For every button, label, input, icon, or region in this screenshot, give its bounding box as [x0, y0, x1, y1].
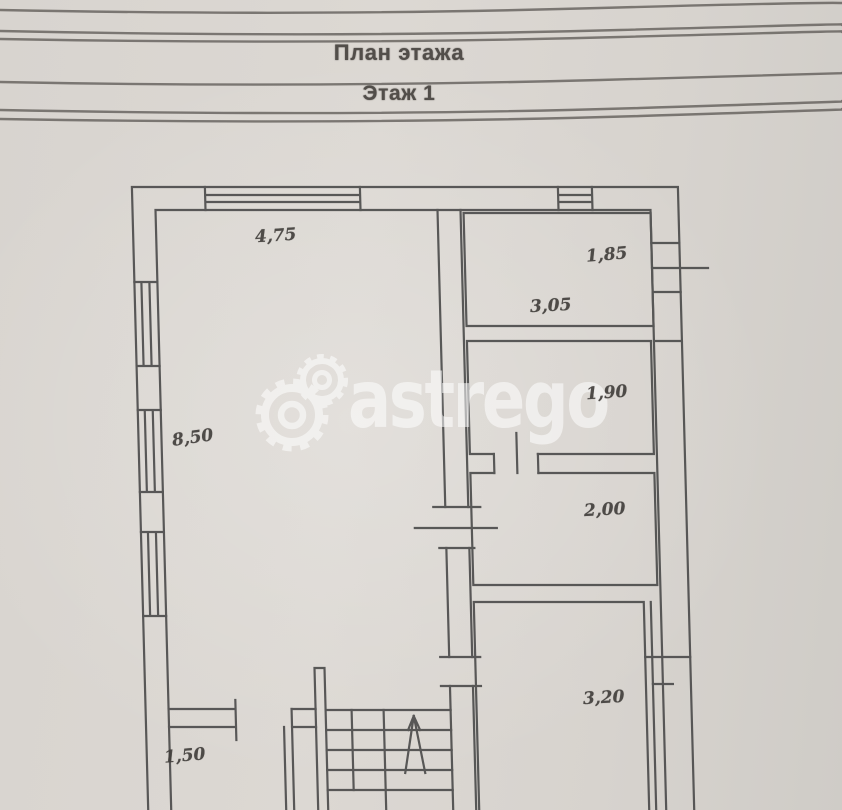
door-middle-upper: [414, 507, 497, 548]
room-bottom-left-wall: [284, 709, 295, 810]
dimension-label-room-right-middle: 2,00: [584, 499, 626, 521]
stairs: [314, 668, 453, 810]
dimension-label-room-bottom-right: 3,20: [583, 687, 625, 709]
door-right-rooms: [493, 433, 538, 473]
window-top-large: [205, 187, 361, 210]
room-right-middle: [470, 473, 657, 585]
window-top-small: [558, 187, 593, 210]
dimension-label-main-room-width: 4,75: [254, 225, 297, 248]
floor-label: Этаж 1: [0, 82, 820, 106]
dimension-label-right-window: 1,85: [585, 243, 628, 267]
page-title: План этажа: [0, 40, 820, 66]
stairs-direction-arrow: [404, 716, 425, 773]
dimension-label-room-bottom-left: 1,50: [163, 744, 206, 768]
dimension-label-room-right-upper: 1,90: [585, 382, 628, 405]
dimension-label-room-top-right: 3,05: [530, 295, 572, 317]
scanned-page: astrego План этажа Этаж 1 4,75 8,50 3,05…: [0, 0, 842, 810]
wall-corridor: [168, 700, 316, 740]
room-bottom-right: [474, 602, 656, 810]
floor-plan-drawing: [0, 0, 842, 810]
